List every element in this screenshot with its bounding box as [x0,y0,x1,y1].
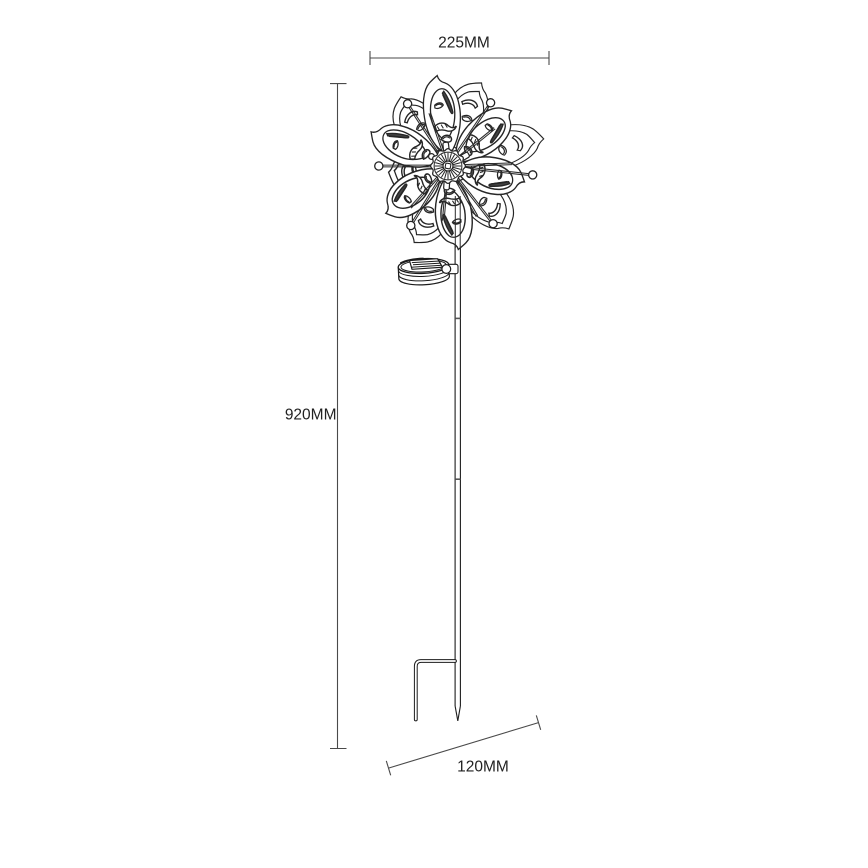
svg-text:120MM: 120MM [457,759,509,776]
svg-text:920MM: 920MM [285,407,337,424]
svg-text:225MM: 225MM [438,35,490,52]
